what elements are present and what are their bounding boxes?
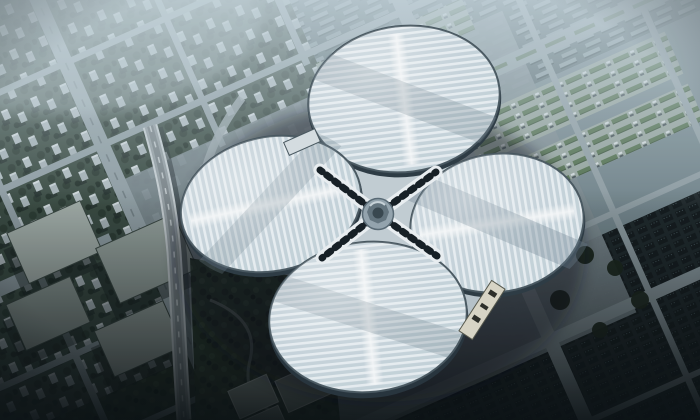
aerial-rendering <box>0 0 700 420</box>
color-tint <box>0 0 700 420</box>
scene-canvas <box>0 0 700 420</box>
